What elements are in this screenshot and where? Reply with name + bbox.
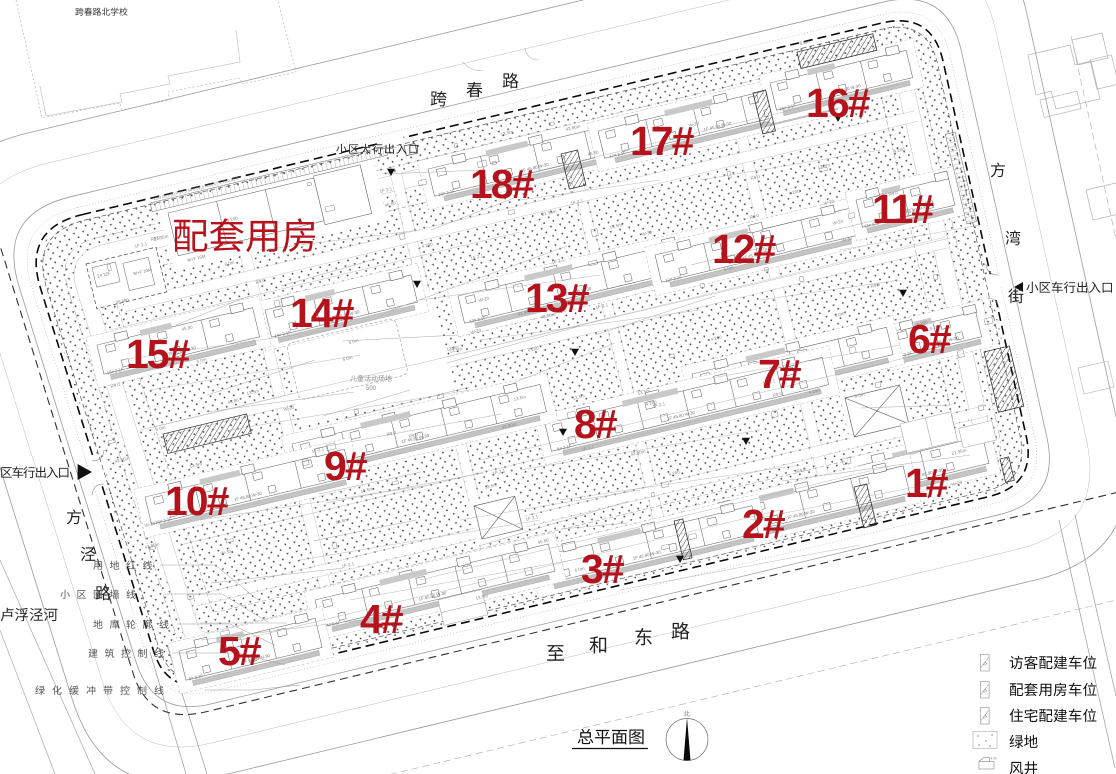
svg-text:500: 500 (366, 386, 377, 392)
svg-text:7#: 7# (758, 351, 802, 397)
svg-text:11#: 11# (872, 186, 934, 232)
svg-text:17#: 17# (630, 118, 695, 164)
svg-text:13#: 13# (525, 275, 590, 321)
svg-text:14#: 14# (290, 290, 355, 336)
svg-text:8#: 8# (574, 401, 618, 447)
svg-text:4.00: 4.00 (991, 757, 997, 761)
svg-text:6#: 6# (908, 316, 952, 362)
svg-text:5#: 5# (218, 628, 262, 674)
svg-text:4#: 4# (360, 596, 404, 642)
svg-text:10#: 10# (165, 478, 230, 524)
svg-text:1#: 1# (905, 460, 949, 506)
svg-text:2#: 2# (742, 501, 786, 547)
svg-text:16#: 16# (806, 80, 871, 126)
svg-text:9#: 9# (324, 443, 368, 489)
svg-text:12#: 12# (712, 226, 777, 272)
svg-text:18#: 18# (470, 161, 535, 207)
svg-text:15#: 15# (126, 331, 191, 377)
svg-text:3#: 3# (581, 546, 625, 592)
